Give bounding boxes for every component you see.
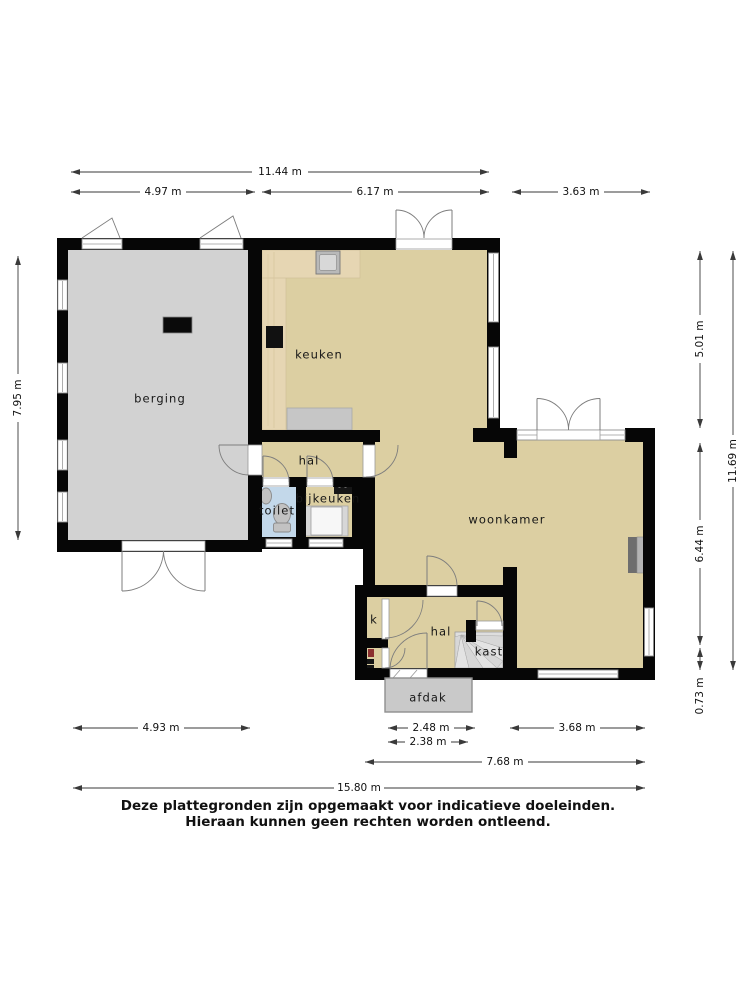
room-keuken	[262, 250, 487, 442]
dim-top-left: 4.97 m	[145, 186, 182, 198]
dim-right-mid: 6.44 m	[694, 526, 706, 563]
room-label-berging: berging	[134, 392, 186, 406]
dim-bottom-total: 15.80 m	[337, 782, 381, 794]
washer-icon	[304, 506, 348, 536]
kitchen-counter-top	[262, 250, 360, 278]
skylight-icon	[163, 317, 192, 333]
room-label-hal-boven: hal	[299, 454, 320, 468]
window-swing-2	[200, 216, 241, 238]
dim-right-total: 11.69 m	[727, 439, 739, 483]
sink-icon	[316, 251, 340, 274]
room-label-woonkamer: woonkamer	[468, 513, 545, 527]
dim-bottom-porch-inner: 2.38 m	[410, 736, 447, 748]
dim-right-upper: 5.01 m	[694, 321, 706, 358]
dim-top-total: 11.44 m	[258, 166, 302, 178]
dim-bottom-right: 3.68 m	[559, 722, 596, 734]
dim-top-right: 3.63 m	[563, 186, 600, 198]
disclaimer-line-1: Deze plattegronden zijn opgemaakt voor i…	[121, 798, 615, 814]
dim-left-total: 7.95 m	[12, 380, 24, 417]
room-label-kast: kast	[475, 645, 503, 659]
cooktop-icon	[266, 326, 283, 348]
door-keuken-french	[396, 210, 452, 249]
dim-bottom-porch: 2.48 m	[413, 722, 450, 734]
disclaimer-line-2: Hieraan kunnen geen rechten worden ontle…	[185, 814, 550, 830]
room-label-k: k	[370, 613, 378, 627]
dim-right-lower: 0.73 m	[694, 678, 706, 715]
room-label-toilet: toilet	[259, 504, 295, 518]
window-swing-1	[82, 218, 120, 238]
floorplan-svg: berging keuken hal toilet bijkeuken woon…	[0, 0, 750, 1000]
dim-bottom-span: 7.68 m	[487, 756, 524, 768]
room-label-hal-beneden: hal	[431, 625, 452, 639]
dim-bottom-left: 4.93 m	[143, 722, 180, 734]
floorplan-page: berging keuken hal toilet bijkeuken woon…	[0, 0, 750, 1000]
meter-cupboard-items	[367, 649, 374, 670]
kitchen-counter-bottom	[287, 408, 352, 430]
room-label-keuken: keuken	[295, 348, 343, 362]
room-label-afdak: afdak	[409, 691, 447, 705]
disclaimer: Deze plattegronden zijn opgemaakt voor i…	[121, 798, 615, 830]
hand-basin-icon	[261, 488, 272, 504]
room-label-bijkeuken: bijkeuken	[296, 492, 361, 506]
door-berging-double	[122, 541, 205, 591]
door-woonkamer-french	[537, 399, 600, 441]
dim-top-mid: 6.17 m	[357, 186, 394, 198]
